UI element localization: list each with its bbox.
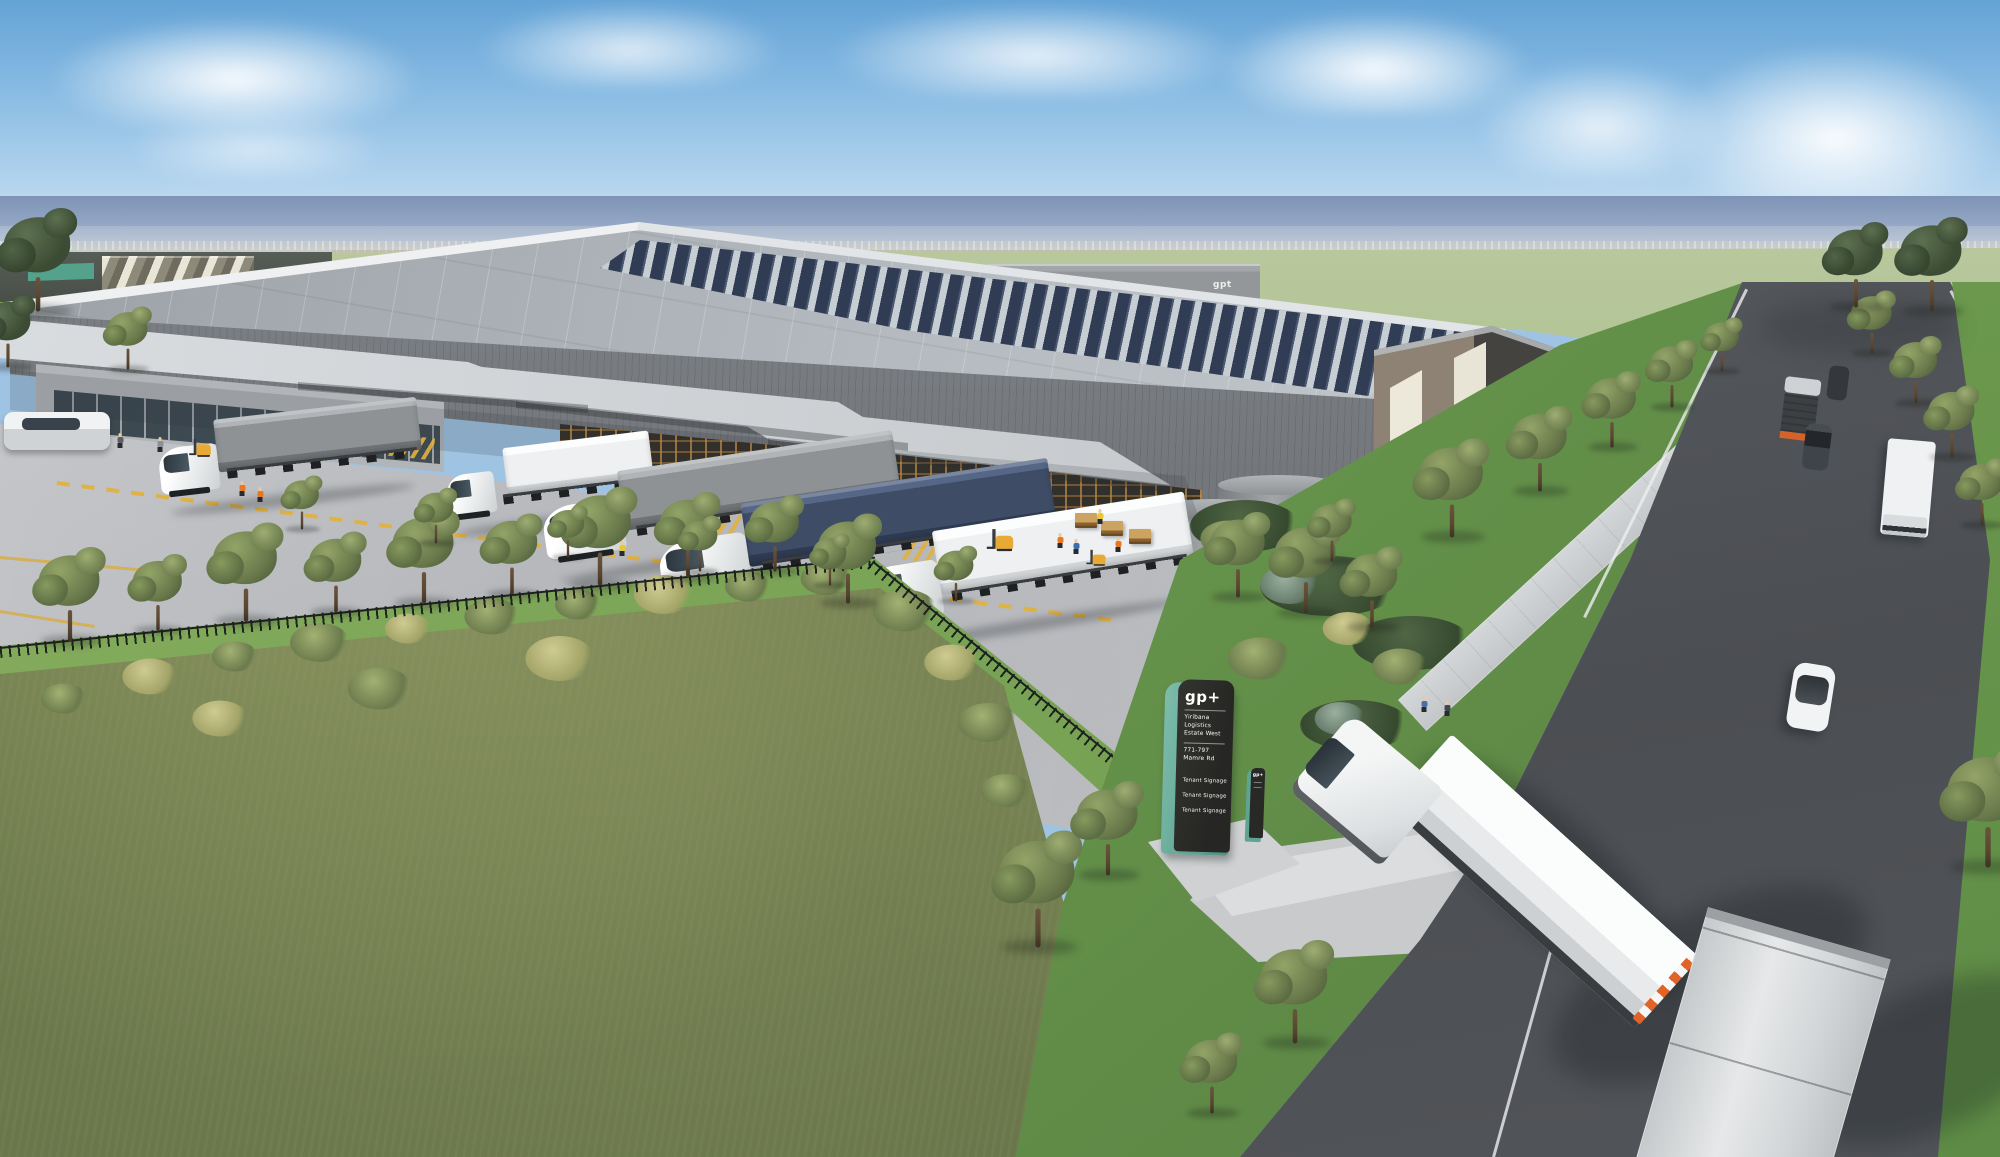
car-windows [22,418,80,430]
divider [1254,782,1262,783]
cloud [820,0,1250,96]
pedestrian [1421,697,1428,712]
forklift [987,527,1013,551]
tree [744,493,805,571]
shrub [212,642,258,672]
shrub [981,774,1032,807]
person [117,433,124,448]
worker-hivis [1097,509,1104,524]
tree [1070,779,1146,876]
pallet-stack [1075,513,1097,528]
forklift [189,437,211,457]
cloud [1660,40,2000,210]
pallet-stack [1101,521,1123,536]
tenant-signage-slot: Tenant Signage [1182,807,1231,814]
tree [414,486,459,543]
cloud [470,0,790,86]
worker-hivis [1057,533,1064,548]
secondary-bollard-sign: gp+ [1245,768,1270,843]
hatchback [1826,365,1850,401]
street-tree [1923,384,1981,458]
worker-hivis [239,481,246,496]
tenant-signage-slot: Tenant Signage [1183,777,1232,784]
distant-building-logo: gpt [1213,280,1232,290]
tree [206,520,285,621]
tree [1412,436,1491,537]
divider [1254,787,1262,788]
tree [1204,510,1272,597]
tree [547,504,589,557]
divider [1184,743,1225,745]
shrub [385,614,431,644]
shrub [526,636,595,681]
gpt-logo-small: gp+ [1251,773,1265,778]
shrub [348,668,412,710]
shrub [1228,638,1292,680]
truck-cab [1882,514,1928,538]
tree [1307,497,1357,561]
worker-hivis [257,487,264,502]
shrub [41,684,87,714]
tree [1506,404,1574,491]
shrub [192,701,247,737]
street-tree [1955,457,2000,526]
pedestrian [1444,701,1451,716]
cloud [120,108,390,178]
tree [127,552,188,630]
tree [32,545,108,642]
estate-name-line: Estate West [1184,730,1233,739]
tree [1254,938,1337,1044]
tree [678,514,723,571]
tree [480,512,545,595]
tenant-signage-slot: Tenant Signage [1182,792,1231,799]
parked-car [4,412,110,450]
divider [1185,709,1226,711]
render-scene: gpt [0,0,2000,1157]
estate-pylon-sign: gp+ Yiribana Logistics Estate West 771-7… [1161,679,1250,861]
sedan [1801,423,1832,472]
gpt-logo: gp+ [1185,689,1234,705]
tree [0,294,37,368]
shrub [958,703,1018,742]
street-tree [1939,743,2000,867]
tree [1581,369,1642,447]
pylon-face: gp+ Yiribana Logistics Estate West 771-7… [1174,679,1235,852]
tree [1822,220,1890,307]
worker [1073,539,1080,554]
tree [1700,316,1743,371]
tree [809,532,851,585]
pallet-stack [1129,529,1151,544]
suv-glass [1794,674,1830,707]
order-picker [1086,548,1105,566]
bollard-face: gp+ [1249,768,1265,838]
worker-hivis [1115,537,1122,552]
tree [1645,339,1699,408]
shrub [290,623,350,662]
tree [103,305,153,369]
shrub [122,659,177,695]
tree [934,544,979,601]
tree [1894,215,1970,312]
tree [1180,1031,1245,1114]
tree [304,530,369,613]
tree [280,474,323,529]
address-line: Mamre Rd [1183,756,1232,765]
